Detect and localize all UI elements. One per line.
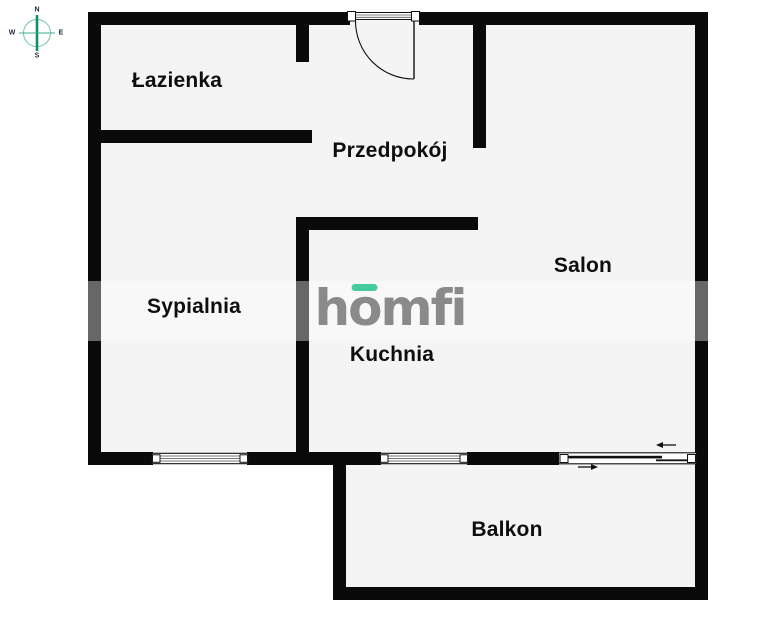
- floorplan-canvas: h o mfi Łazienka Przedpokój Sypialnia Ku…: [0, 0, 783, 620]
- entrance-door-jamb-right: [412, 12, 420, 22]
- room-label-lazienka: Łazienka: [132, 69, 222, 93]
- balcony-wall-left: [333, 465, 346, 600]
- kitchen-window-cap-left: [381, 455, 389, 463]
- room-label-sypialnia: Sypialnia: [147, 295, 241, 319]
- logo-letter-o: o: [348, 280, 380, 336]
- wall-top-left-segment: [88, 12, 350, 25]
- bedroom-window: [152, 453, 248, 463]
- room-label-balkon: Balkon: [471, 518, 542, 542]
- room-label-przedpokoj: Przedpokój: [332, 139, 447, 163]
- entrance-door-frame: [356, 13, 412, 20]
- compass-label-south: S: [35, 53, 40, 60]
- room-label-salon: Salon: [554, 254, 612, 278]
- compass-rose: [19, 15, 55, 51]
- compass-label-north: N: [34, 7, 39, 14]
- balcony-wall-bottom: [333, 587, 708, 600]
- sliding-door-panel-2: [656, 459, 692, 461]
- wall-bottom-segment-2: [247, 452, 381, 465]
- logo-letters-mfi: mfi: [380, 280, 465, 336]
- sliding-door-cap-right: [688, 455, 696, 463]
- compass-label-west: W: [9, 30, 16, 37]
- bedroom-window-cap-left: [153, 455, 161, 463]
- room-label-kuchnia: Kuchnia: [350, 343, 434, 367]
- logo-accent-bar: [351, 284, 377, 291]
- bedroom-kitchen-divider-wall: [296, 217, 309, 465]
- bathroom-bottom-wall: [88, 130, 312, 143]
- sliding-door-panel-1: [568, 456, 662, 459]
- bathroom-right-wall-stub: [296, 12, 309, 62]
- sliding-door-cap-left: [560, 455, 568, 463]
- wall-top-right-segment: [419, 12, 708, 25]
- kitchen-top-wall: [296, 217, 478, 230]
- kitchen-window: [380, 453, 468, 463]
- homfi-logo: h o mfi: [315, 280, 466, 336]
- bedroom-window-cap-right: [240, 455, 248, 463]
- hallway-right-wall: [473, 12, 486, 148]
- wall-bottom-segment-1: [88, 452, 153, 465]
- compass-label-east: E: [59, 30, 64, 37]
- wall-left: [88, 12, 101, 465]
- wall-bottom-segment-3: [467, 452, 559, 465]
- kitchen-window-cap-right: [460, 455, 468, 463]
- logo-letter-h: h: [315, 280, 349, 336]
- entrance-door-jamb-left: [348, 12, 356, 22]
